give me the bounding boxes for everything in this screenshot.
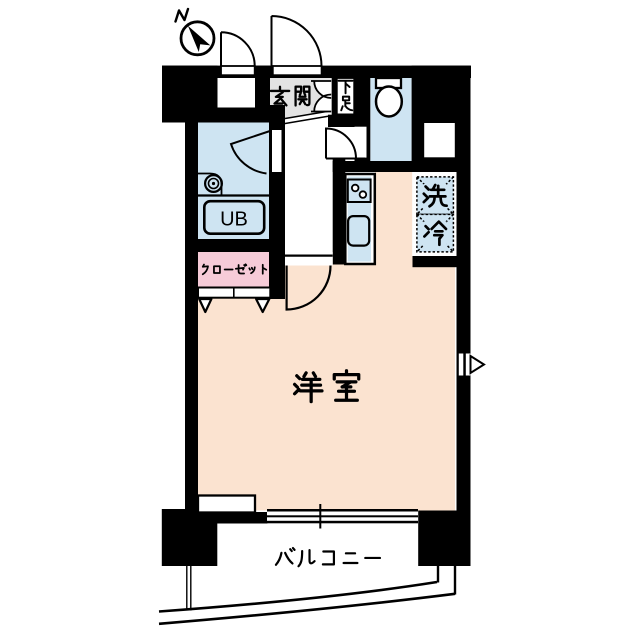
svg-text:UB: UB <box>220 209 248 231</box>
